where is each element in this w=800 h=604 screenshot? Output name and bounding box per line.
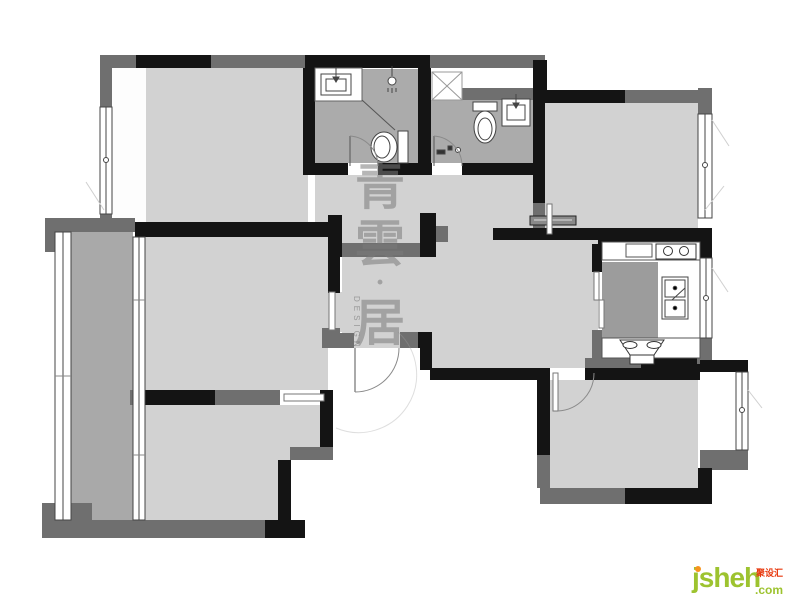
logo-tld-text: .com <box>755 583 783 597</box>
bedroom-topright-door <box>547 204 552 234</box>
floor-plan-canvas: 青 雲 · 居 DESIGN jsheh 聚设汇 .com <box>0 0 800 604</box>
window-balcony-west <box>55 232 71 520</box>
wardrobe-icon <box>530 216 576 225</box>
toilet-right-icon <box>473 102 497 143</box>
bathroom-sink2-icon <box>502 94 530 126</box>
logo-badge-text: 聚设汇 <box>756 566 783 579</box>
bedroom-bottomleft-floor <box>145 405 320 520</box>
site-logo: jsheh 聚设汇 .com <box>686 562 798 602</box>
living-room-floor <box>146 68 308 222</box>
window-balcony-inner <box>133 237 145 520</box>
bay-window-floor <box>700 372 736 452</box>
cooktop-burners-icon <box>656 244 696 259</box>
bedroom-bottomright-floor <box>550 380 698 488</box>
bedroom-midleft-floor <box>145 237 328 390</box>
floor-plan-drawing <box>0 0 800 604</box>
entry-door <box>355 348 399 392</box>
shower-tray-icon <box>432 72 462 100</box>
logo-brand-text: jsheh <box>692 562 760 594</box>
window-bay-east <box>736 372 748 450</box>
kitchen-sink-icon <box>662 277 688 319</box>
living-window-recess <box>112 68 146 222</box>
window-bedroom-topright <box>698 114 712 218</box>
bedroom-midleft-door <box>329 292 335 330</box>
window-kitchen-east <box>700 258 712 338</box>
bedroom-bottomleft-door <box>284 394 324 401</box>
balcony-floor <box>71 232 133 520</box>
kitchen-block <box>602 262 658 340</box>
window-living-west <box>100 107 112 214</box>
logo-j-dot-icon <box>695 566 701 572</box>
bedroom-topright-floor <box>545 102 698 228</box>
